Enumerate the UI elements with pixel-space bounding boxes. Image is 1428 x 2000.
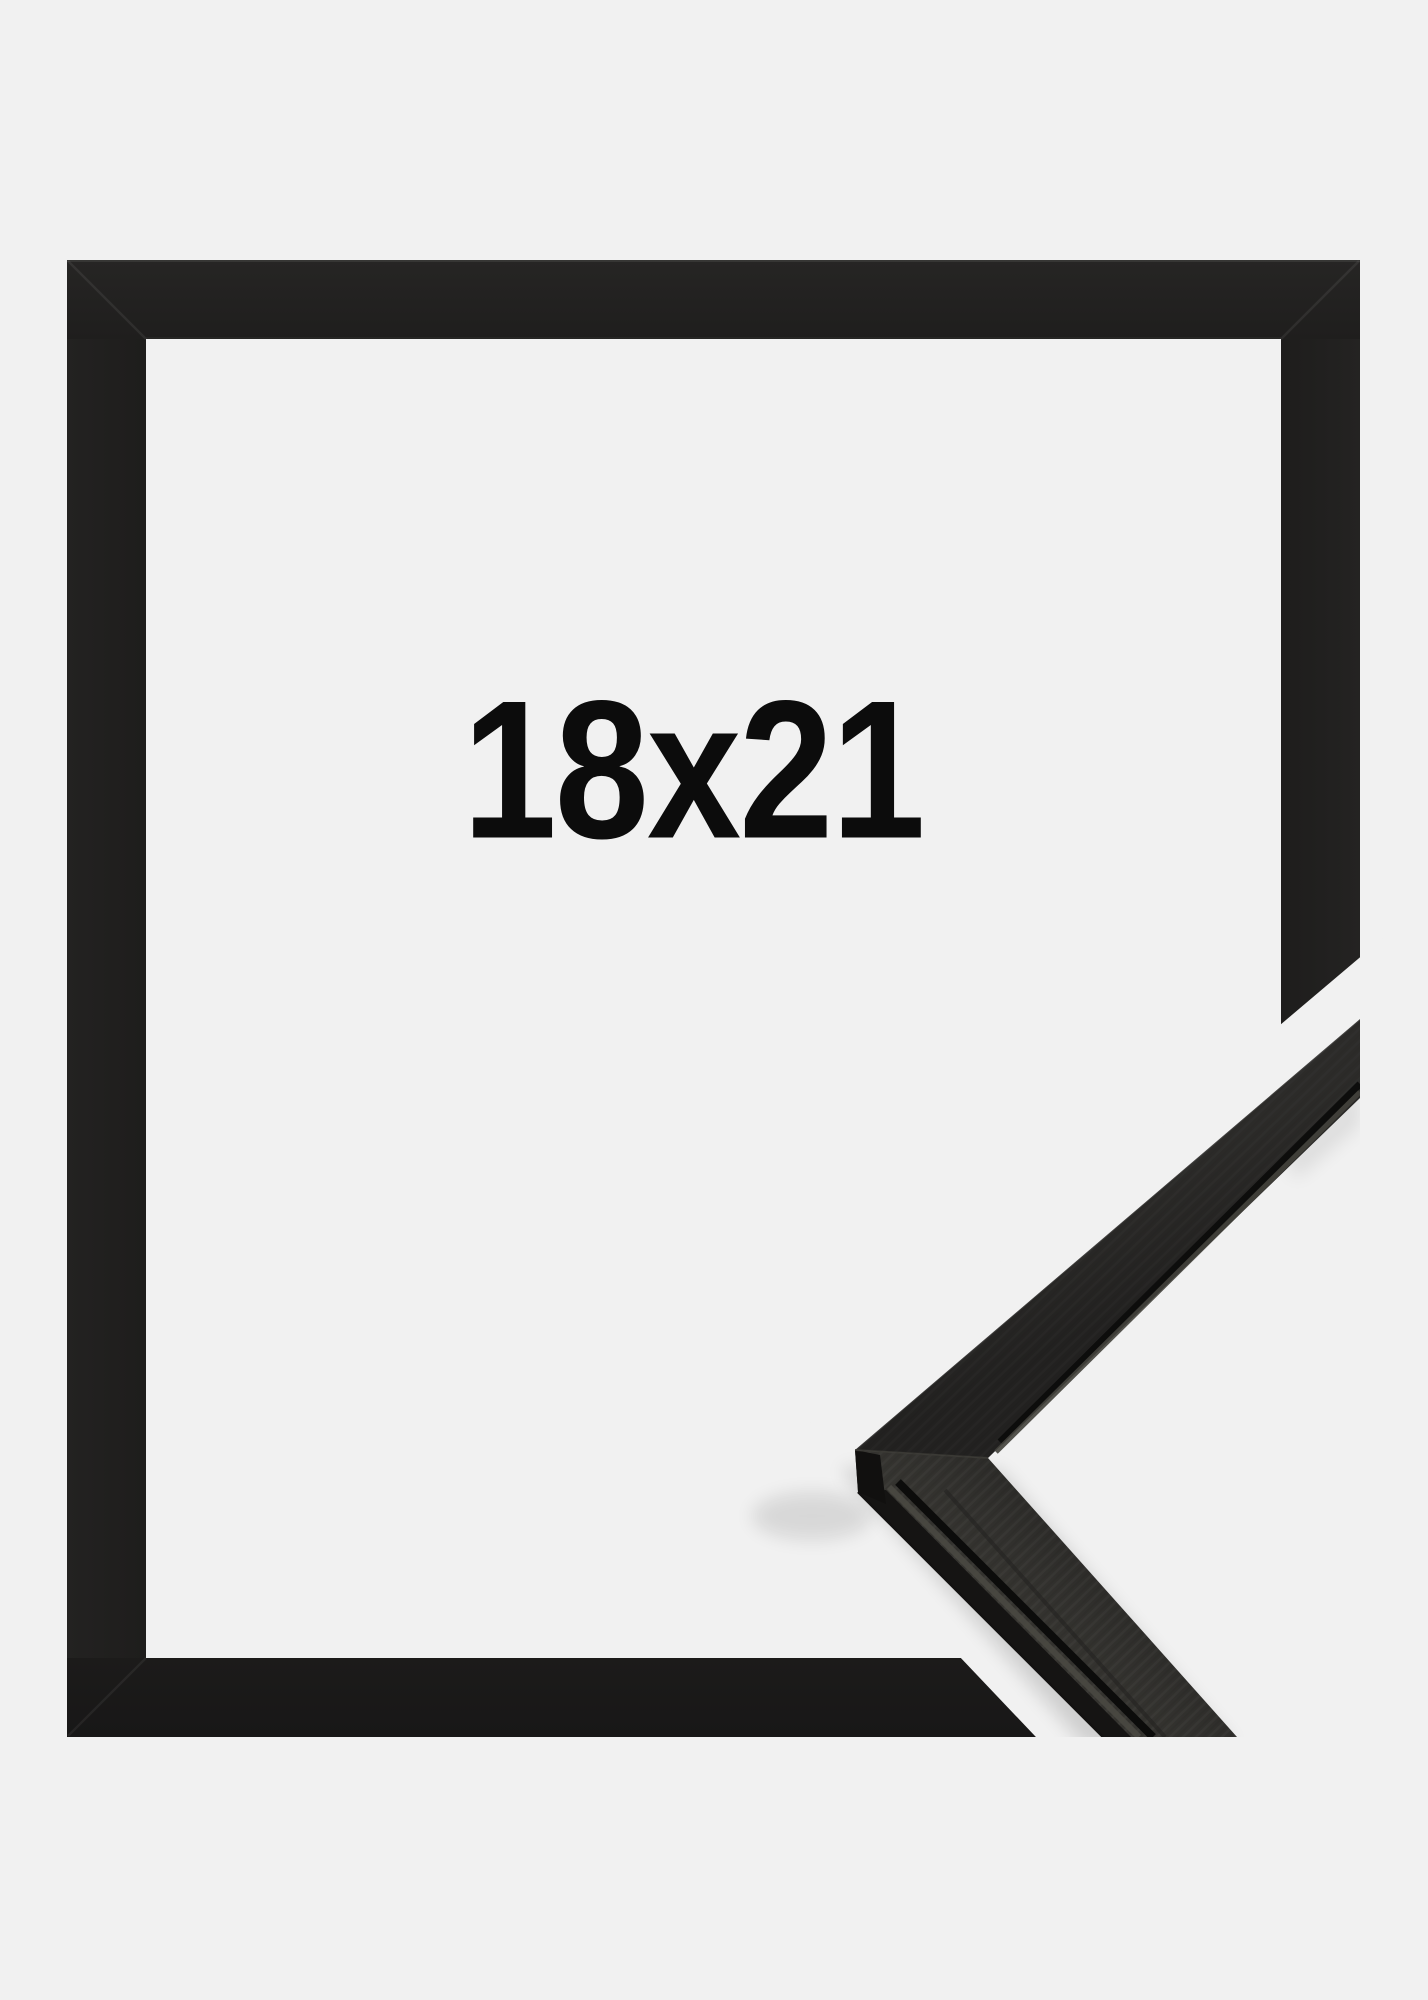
frame-graphic bbox=[0, 0, 1428, 2000]
frame-left-bar bbox=[67, 260, 146, 1737]
size-label: 18x21 bbox=[463, 672, 924, 869]
frame-product-image: 18x21 bbox=[0, 0, 1428, 2000]
frame-top-bar bbox=[67, 260, 1360, 339]
